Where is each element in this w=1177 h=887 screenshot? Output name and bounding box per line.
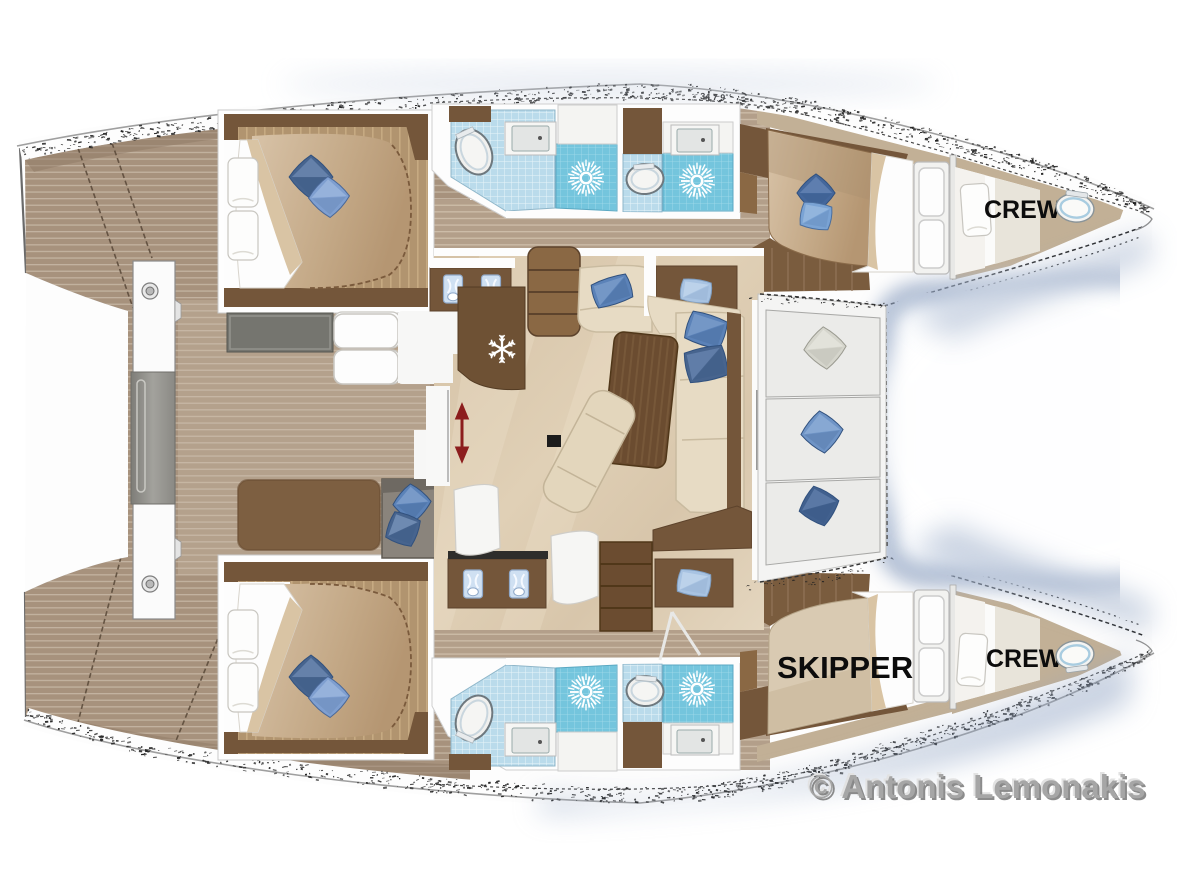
- svg-text:CREW: CREW: [986, 645, 1063, 673]
- svg-text:CREW: CREW: [984, 196, 1061, 224]
- svg-text:SKIPPER: SKIPPER: [777, 650, 913, 685]
- svg-text:© Antonis Lemonakis: © Antonis Lemonakis: [809, 768, 1146, 805]
